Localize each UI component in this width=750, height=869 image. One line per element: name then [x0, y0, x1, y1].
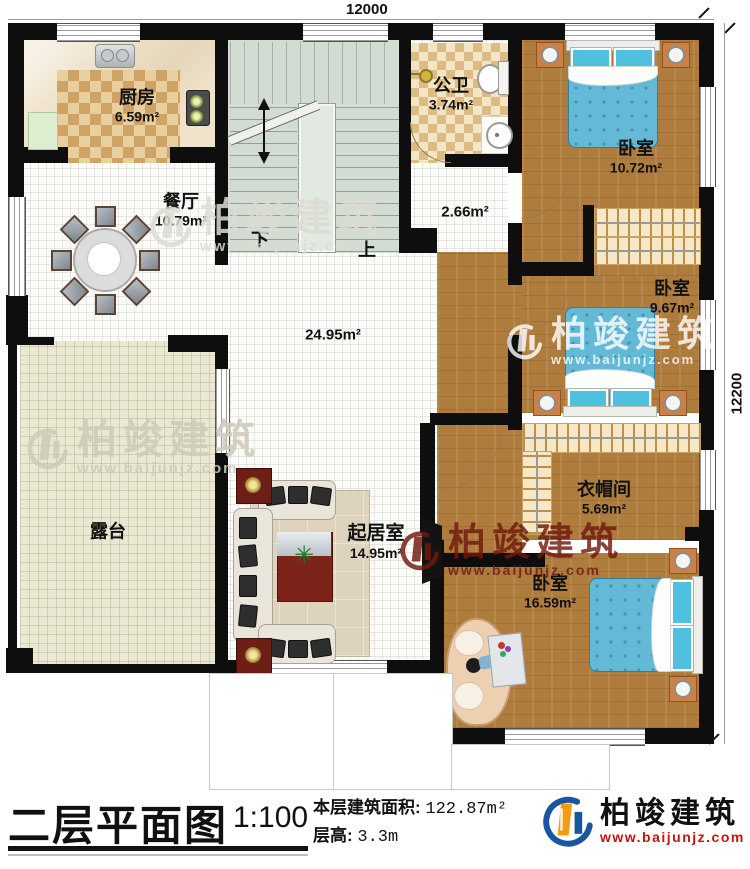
flowers: [500, 651, 506, 657]
sofa-cushion: [239, 575, 257, 597]
brand-text-block: 柏竣建筑 www.baijunjz.com: [600, 799, 745, 845]
closet-bedroom2: [594, 237, 701, 265]
stair-landing: [230, 42, 397, 104]
room-label-terrace: 露台: [90, 522, 126, 543]
closet-rail: [536, 452, 538, 534]
closet-wall-stub: [583, 205, 594, 276]
title-underline: [8, 846, 308, 851]
room-label-bedroom3: 卧室 16.59m²: [524, 574, 576, 611]
stair-right-wall: [399, 40, 411, 253]
flowers: [505, 646, 511, 652]
dimension-tick: [698, 7, 709, 18]
corridor-wall: [420, 423, 435, 533]
nightstand: [533, 390, 561, 416]
bathroom-wall: [445, 154, 508, 167]
plant-icon: ✳: [292, 544, 316, 568]
dimension-right: 12200: [729, 369, 746, 419]
dimension-line-right: [724, 23, 725, 744]
stair-left-wall: [215, 40, 228, 265]
sink-drain: [495, 133, 499, 137]
sofa-cushion: [310, 638, 332, 659]
wall-bedroom-divider: [522, 262, 584, 276]
area-label-corridor: 2.66m²: [441, 204, 489, 221]
terrace-top-wall: [20, 337, 54, 345]
plan-area-row: 本层建筑面积: 122.87m²: [313, 795, 507, 823]
lamp-icon: [541, 46, 559, 64]
cloakroom-wall-stub: [685, 527, 699, 541]
chair-cushion: [454, 630, 484, 656]
wall-right: [699, 23, 714, 87]
cloakroom-rack-top: [522, 423, 701, 453]
cloakroom-rack-left: [522, 451, 552, 535]
window: [699, 300, 716, 370]
fridge: [28, 112, 58, 150]
window: [699, 87, 716, 187]
plan-info: 本层建筑面积: 122.87m² 层高: 3.3m: [313, 795, 507, 852]
side-table: [487, 632, 526, 687]
window: [8, 197, 26, 296]
bed-bedroom3: [589, 576, 701, 672]
lamp-icon: [674, 680, 692, 698]
bed-pillow: [671, 626, 693, 671]
wall-right: [699, 187, 714, 300]
sofa-cushion: [239, 517, 257, 539]
sink-bowl: [101, 49, 114, 62]
lower-floor-outline: [209, 673, 335, 790]
terrace-floor: [20, 341, 215, 671]
stair-label-up: 上: [358, 236, 376, 262]
tv-icon: [422, 518, 442, 584]
kitchen-wall: [170, 147, 215, 163]
sofa-cushion: [288, 640, 308, 658]
lower-floor-outline: [451, 744, 610, 790]
burner: [190, 95, 203, 108]
stair-direction-line: [263, 108, 265, 156]
room-label-cloakroom: 衣帽间 5.69m²: [577, 480, 631, 517]
arrow-down-icon: [258, 152, 270, 164]
bed-pillow: [614, 48, 654, 68]
dining-chair: [139, 250, 160, 271]
living-left-wall: [215, 342, 228, 369]
window: [57, 23, 140, 42]
room-label-bedroom2: 卧室 9.67m²: [650, 279, 694, 316]
plan-height-row: 层高: 3.3m: [313, 823, 507, 851]
room-label-kitchen: 厨房 6.59m²: [115, 88, 159, 125]
area-label-hall: 24.95m²: [305, 327, 361, 344]
closet-bedroom1: [594, 208, 701, 237]
stair-void: [299, 104, 335, 252]
window: [699, 450, 716, 510]
bed-bedroom1: [566, 40, 658, 148]
dining-table-center: [87, 242, 121, 276]
flowers: [498, 642, 505, 649]
burner: [190, 110, 203, 123]
brand-logo-icon: [540, 793, 594, 851]
dining-chair: [95, 294, 116, 315]
lamp-icon: [538, 394, 556, 412]
stair-flight-right: [335, 104, 399, 252]
terrace-door-window: [215, 369, 230, 453]
bed-pillow: [671, 580, 693, 625]
bed-headboard: [692, 576, 703, 674]
stair-label-down: 下: [251, 226, 269, 252]
arrow-up-icon: [258, 98, 270, 110]
closet-rail: [595, 250, 700, 252]
lower-floor-outline: [333, 673, 453, 790]
nightstand: [669, 676, 697, 702]
floor-plan-canvas: 12000 12200: [0, 0, 750, 869]
sofa-cushion: [310, 486, 332, 507]
title-underline-thin: [8, 854, 308, 856]
brand-url: www.baijunjz.com: [600, 829, 745, 845]
sofa-cushion: [288, 486, 308, 504]
plan-scale: 1:100: [233, 801, 308, 835]
lamp-icon: [664, 394, 682, 412]
nightstand: [662, 42, 690, 68]
room-label-living: 起居室 14.95m²: [347, 523, 404, 561]
bathroom-sink: [486, 122, 513, 149]
toilet-tank: [498, 61, 509, 95]
living-left-wall: [215, 451, 228, 673]
sofa-cushion: [238, 604, 258, 628]
living-bottom-wall: [387, 660, 433, 673]
brand-name: 柏竣建筑: [600, 799, 745, 829]
nightstand: [669, 548, 697, 574]
closet-rail: [523, 437, 700, 439]
room-label-bath: 公卫 3.74m²: [429, 76, 473, 113]
sofa-left: [233, 508, 273, 642]
lamp-icon: [245, 647, 261, 663]
bed-bedroom2: [563, 307, 655, 415]
wall-right: [699, 370, 714, 450]
wall-bedroom2-bottom: [430, 413, 522, 425]
wall-bedroom1-left: [508, 223, 522, 285]
closet-rail: [595, 222, 700, 224]
nightstand: [659, 390, 687, 416]
hall-wall-stub: [399, 228, 437, 253]
lamp-icon: [674, 552, 692, 570]
chair-cushion: [454, 682, 484, 710]
dimension-tick: [724, 22, 735, 33]
dimension-line-top: [8, 19, 714, 20]
wall-bedroom1-left: [508, 40, 522, 173]
dining-chair: [95, 206, 116, 227]
terrace-parapet-bottom: [8, 664, 215, 673]
terrace-parapet-left: [8, 345, 17, 652]
sink-bowl: [116, 49, 129, 62]
brand-logo: 柏竣建筑 www.baijunjz.com: [540, 793, 745, 851]
plan-title: 二层平面图: [8, 792, 228, 853]
room-label-bedroom1: 卧室 10.72m²: [610, 139, 662, 176]
sofa-cushion: [238, 544, 258, 568]
window: [433, 23, 483, 42]
dining-chair: [51, 250, 72, 271]
nightstand: [536, 42, 564, 68]
lamp-icon: [245, 477, 261, 493]
room-label-dining: 餐厅 10.79m²: [155, 192, 207, 229]
dimension-top: 12000: [346, 1, 388, 18]
bed-sheet: [651, 578, 671, 672]
bed-pillow: [571, 48, 611, 68]
window: [303, 23, 388, 42]
bedroom3-top-wall: [437, 553, 545, 567]
lamp-icon: [667, 46, 685, 64]
bed-headboard: [563, 406, 657, 417]
